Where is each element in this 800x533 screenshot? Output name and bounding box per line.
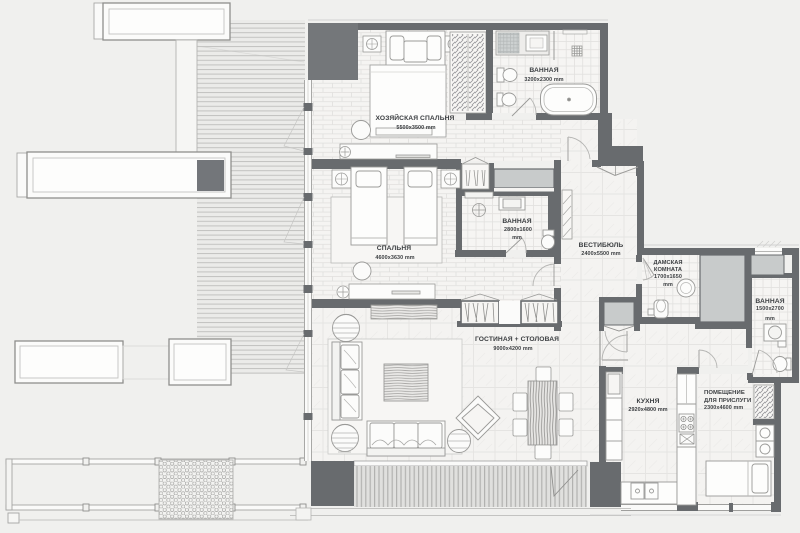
svg-text:mm: mm <box>765 316 775 322</box>
svg-text:ВЕСТИБЮЛЬ: ВЕСТИБЮЛЬ <box>579 242 624 249</box>
svg-text:1500х2700: 1500х2700 <box>756 306 784 312</box>
svg-text:2400х5500 mm: 2400х5500 mm <box>581 251 620 257</box>
svg-text:ДАМСКАЯ: ДАМСКАЯ <box>653 260 682 266</box>
svg-text:ХОЗЯЙСКАЯ СПАЛЬНЯ: ХОЗЯЙСКАЯ СПАЛЬНЯ <box>376 113 455 122</box>
svg-text:КОМНАТА: КОМНАТА <box>654 267 682 273</box>
svg-text:ВАННАЯ: ВАННАЯ <box>529 67 558 74</box>
svg-text:СПАЛЬНЯ: СПАЛЬНЯ <box>377 245 411 252</box>
svg-text:3200х2300 mm: 3200х2300 mm <box>524 77 563 83</box>
svg-text:2300х4600 mm: 2300х4600 mm <box>704 405 743 411</box>
svg-text:ГОСТИНАЯ + СТОЛОВАЯ: ГОСТИНАЯ + СТОЛОВАЯ <box>475 336 559 343</box>
svg-text:ПОМЕЩЕНИЕ: ПОМЕЩЕНИЕ <box>704 390 745 396</box>
svg-text:2920х4800 mm: 2920х4800 mm <box>628 407 667 413</box>
svg-text:2800х1600: 2800х1600 <box>504 227 532 233</box>
svg-text:ВАННАЯ: ВАННАЯ <box>502 218 531 225</box>
svg-text:5500х3500 mm: 5500х3500 mm <box>396 125 435 131</box>
svg-text:КУХНЯ: КУХНЯ <box>636 398 659 405</box>
svg-text:4600х3630 mm: 4600х3630 mm <box>375 255 414 261</box>
svg-text:9000х4200 mm: 9000х4200 mm <box>493 346 532 352</box>
svg-text:mm: mm <box>512 235 522 241</box>
svg-text:ДЛЯ ПРИСЛУГИ: ДЛЯ ПРИСЛУГИ <box>704 398 751 404</box>
svg-text:ВАННАЯ: ВАННАЯ <box>755 298 784 305</box>
svg-text:mm: mm <box>663 282 673 288</box>
svg-text:1700х1650: 1700х1650 <box>654 274 682 280</box>
